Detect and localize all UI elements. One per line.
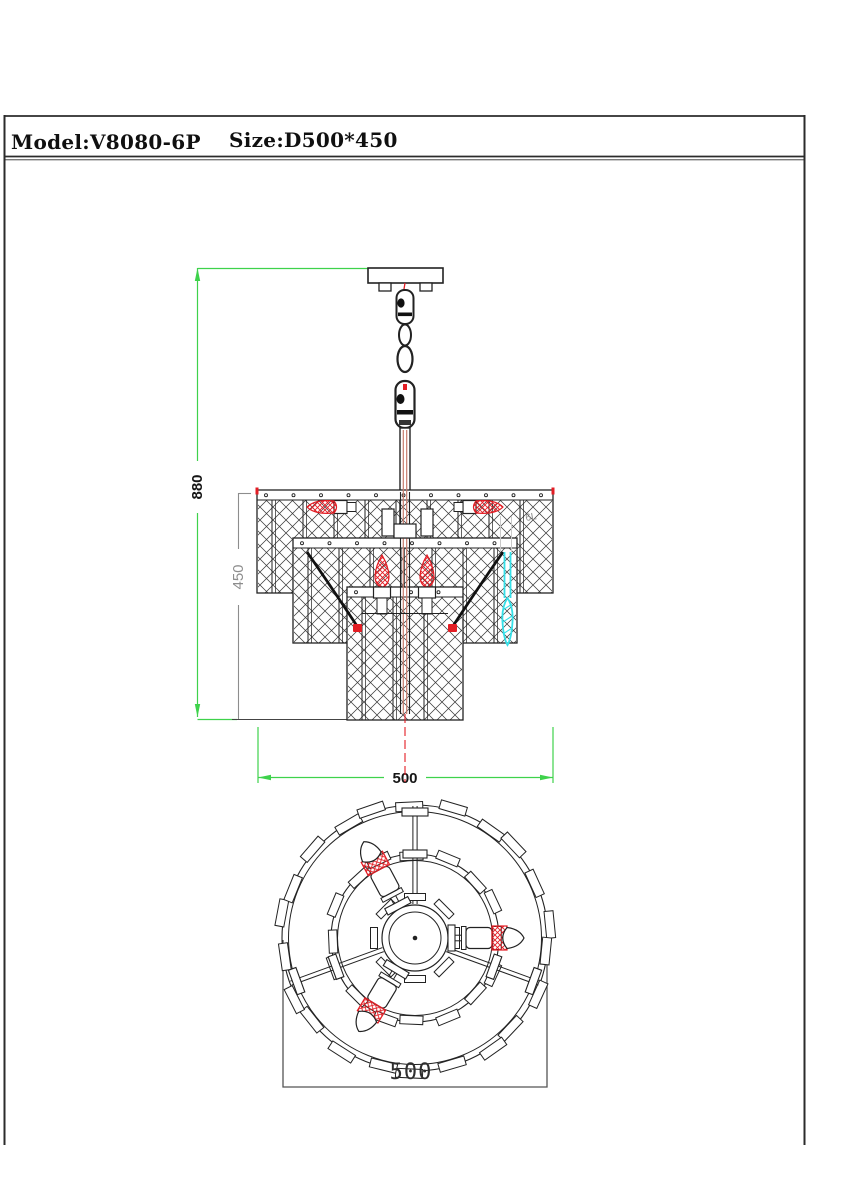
spoke-top — [402, 806, 428, 904]
dim-body-height-label: 450 — [230, 564, 247, 589]
plan-view: 500 — [275, 800, 556, 1087]
technical-drawing-canvas: Model:V8080-6P Size:D500*450 880 450 — [0, 0, 848, 1200]
canopy-and-chain — [368, 268, 443, 492]
title-block: Model:V8080-6P Size:D500*450 — [11, 128, 398, 154]
drawing-sheet: Model:V8080-6P Size:D500*450 880 450 — [0, 0, 848, 1200]
model-label: Model:V8080-6P — [11, 130, 201, 154]
dim-plan-width-label: 500 — [390, 1060, 433, 1085]
dim-overall-height-label: 880 — [189, 474, 206, 499]
front-elevation-view: 880 450 500 — [189, 268, 555, 787]
size-label: Size:D500*450 — [229, 128, 398, 152]
